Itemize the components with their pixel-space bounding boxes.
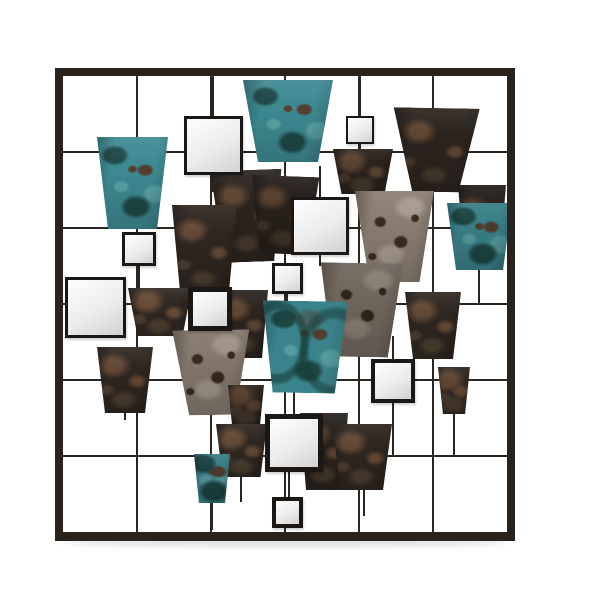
hanger-wire-stub — [211, 501, 213, 530]
frame-highlight — [63, 76, 507, 77]
metal-pot-teal — [97, 137, 168, 229]
hanger-wire-stub — [453, 412, 455, 456]
product-photo-canvas: { "scene": { "kind": "product-photo", "s… — [0, 0, 600, 600]
metal-pot-teal — [194, 454, 230, 503]
wall-shadow — [62, 538, 508, 547]
mirror-tile — [265, 414, 323, 472]
metal-pot-dark — [392, 107, 479, 192]
metal-pot-dark — [405, 292, 461, 359]
hanger-wire-stub — [478, 270, 480, 304]
metal-pot-dark — [332, 424, 392, 490]
hanger-wire-stub — [359, 76, 361, 118]
metal-pot-dark — [128, 288, 192, 336]
hanger-wire-stub — [288, 471, 290, 499]
hanger-wire-stub — [240, 475, 242, 502]
hanger-wire-stub — [392, 401, 394, 456]
metal-pot-teal — [243, 80, 333, 162]
mirror-tile — [65, 277, 126, 338]
hanger-wire-stub — [319, 166, 321, 199]
mirror-tile — [122, 232, 156, 266]
mirror-tile — [291, 197, 349, 255]
hanger-wire-stub — [363, 488, 365, 516]
metal-pot-teal — [447, 203, 512, 270]
metal-pot-dark — [438, 367, 470, 414]
metal-pot-teal — [261, 300, 348, 393]
mirror-tile — [272, 497, 303, 528]
mirror-tile — [184, 116, 243, 175]
metal-pot-dark — [228, 385, 264, 425]
metal-pot-dark — [333, 149, 393, 194]
metal-pot-dark — [97, 347, 153, 413]
metal-pot-dark — [172, 205, 237, 297]
wall-art-sculpture — [55, 68, 515, 541]
mirror-tile — [272, 263, 303, 294]
hanger-wire-stub — [138, 266, 140, 290]
hanger-wire-stub — [212, 76, 214, 118]
mirror-tile — [188, 287, 232, 331]
hanger-wire-stub — [392, 336, 394, 361]
mirror-tile — [346, 116, 374, 144]
mirror-tile — [371, 359, 415, 403]
